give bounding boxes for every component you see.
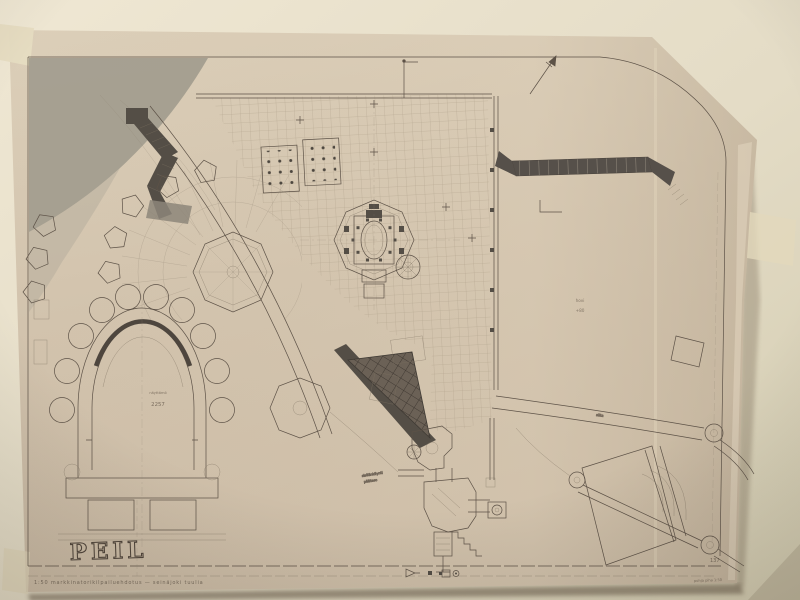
plan-photo-canvas: näyttämö 2257 (0, 0, 800, 600)
photo-vignette (0, 0, 800, 600)
photo-of-architectural-plan: näyttämö 2257 (0, 0, 800, 600)
